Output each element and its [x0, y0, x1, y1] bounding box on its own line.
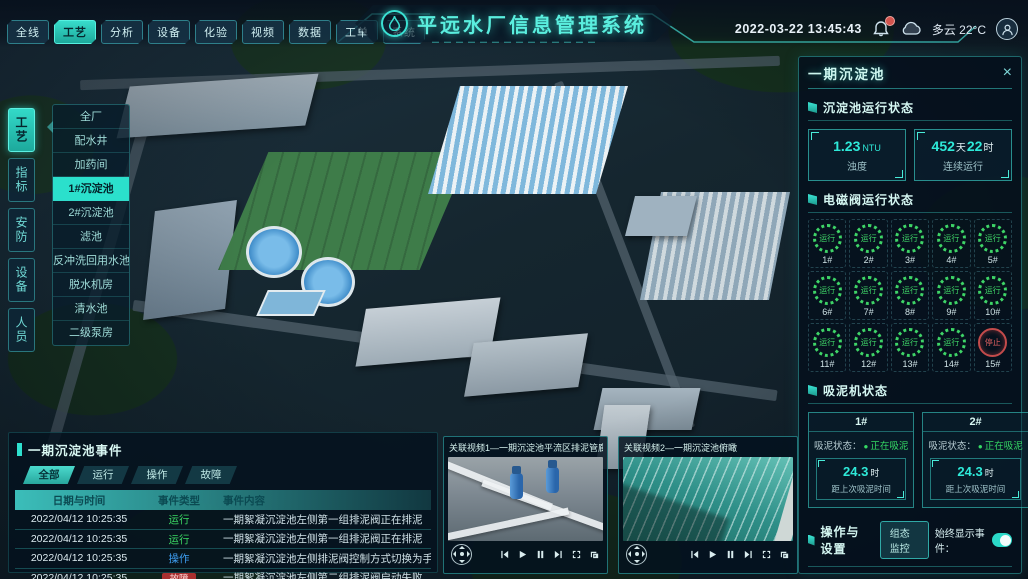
- valve-6[interactable]: 运行6#: [808, 271, 846, 320]
- scene-element: [554, 81, 695, 430]
- scraper-status-line: 吸泥状态：●正在吸泥: [923, 432, 1027, 456]
- valve-9[interactable]: 运行9#: [932, 271, 970, 320]
- weather-text: 多云 22°C: [932, 21, 986, 38]
- playback-buttons: [499, 549, 600, 560]
- uptime-hours-unit: 时: [983, 143, 993, 154]
- fullscreen-icon[interactable]: [761, 549, 772, 560]
- notification-bell-icon[interactable]: [872, 20, 890, 38]
- user-avatar[interactable]: [996, 18, 1018, 40]
- alarm-badge: [885, 16, 895, 26]
- scene-element: [510, 473, 523, 499]
- valve-2[interactable]: 运行2#: [849, 219, 887, 268]
- ptz-dpad-control[interactable]: [451, 544, 472, 565]
- section-title: 吸泥机状态: [823, 382, 888, 399]
- section-chip-icon: [17, 443, 22, 456]
- pond-status-cards: 1.23NTU 浊度 452天22时 连续运行: [808, 129, 1012, 181]
- pause-icon[interactable]: [535, 549, 546, 560]
- nav-tab-huayan[interactable]: 化验: [195, 20, 237, 44]
- scene-element: [428, 86, 628, 194]
- panel-header: 一期沉淀池 ×: [808, 63, 1012, 89]
- skip-forward-icon[interactable]: [553, 549, 564, 560]
- turbidity-label: 浊度: [847, 158, 867, 173]
- uptime-hours: 22: [967, 138, 983, 154]
- valve-13[interactable]: 运行13#: [891, 323, 929, 372]
- uptime-days-unit: 天: [956, 143, 966, 154]
- menu-item-dewatering-room[interactable]: 脱水机房: [53, 273, 129, 297]
- scene-element: [594, 388, 701, 430]
- valve-12[interactable]: 运行12#: [849, 323, 887, 372]
- uptime-days: 452: [932, 138, 955, 154]
- valve-7[interactable]: 运行7#: [849, 271, 887, 320]
- scene-element: [448, 508, 569, 541]
- video-feed-2[interactable]: [623, 457, 793, 541]
- events-title: 一期沉淀池事件: [28, 440, 123, 459]
- water-drop-logo-icon: [381, 10, 408, 37]
- scene-element: [117, 74, 319, 139]
- left-category-tabs: 工艺 指标 安防 设备 人员: [8, 108, 35, 352]
- scene-element: [218, 152, 470, 270]
- process-menu: 全厂 配水井 加药间 1#沉淀池 2#沉淀池 滤池 反冲洗回用水池 脱水机房 清…: [52, 104, 130, 346]
- nav-tab-quanxian[interactable]: 全线: [7, 20, 49, 44]
- nav-tab-gongyi[interactable]: 工艺: [54, 20, 96, 44]
- event-type-badge: 运行: [169, 534, 190, 546]
- valve-8[interactable]: 运行8#: [891, 271, 929, 320]
- scraper-timer-box: 24.3时 距上次吸泥时间: [930, 458, 1020, 500]
- scraper-id: 2#: [923, 413, 1027, 432]
- nav-tab-shebei[interactable]: 设备: [148, 20, 190, 44]
- pause-icon[interactable]: [725, 549, 736, 560]
- status-dot-icon: ●: [864, 442, 869, 451]
- events-panel: 一期沉淀池事件 全部 运行 操作 故障 日期与时间 事件类型 事件内容 2022…: [8, 432, 438, 573]
- valve-4[interactable]: 运行4#: [932, 219, 970, 268]
- events-filter-tabs: 全部 运行 操作 故障: [23, 466, 437, 484]
- scene-element: [143, 200, 237, 320]
- section-title: 操作与设置: [821, 523, 868, 557]
- events-table: 日期与时间 事件类型 事件内容 2022/04/12 10:25:35 运行 一…: [15, 490, 431, 579]
- status-dot-icon: ●: [978, 442, 983, 451]
- scraper-cards: 1# 吸泥状态：●正在吸泥 24.3时 距上次吸泥时间 2# 吸泥状态：●正在吸…: [808, 412, 1012, 508]
- ptz-dpad-control[interactable]: [626, 544, 647, 565]
- valve-3[interactable]: 运行3#: [891, 219, 929, 268]
- section-chip-icon: [808, 194, 817, 205]
- scene-element: [246, 226, 302, 278]
- video-controls: [448, 541, 603, 567]
- event-type-badge: 操作: [169, 553, 190, 565]
- skip-back-icon[interactable]: [499, 549, 510, 560]
- close-icon[interactable]: ×: [1003, 65, 1012, 81]
- events-header: 一期沉淀池事件: [9, 438, 437, 463]
- scraper-id: 1#: [809, 413, 913, 432]
- sidebar-tab-process[interactable]: 工艺: [8, 108, 35, 152]
- replay-icon[interactable]: [589, 549, 600, 560]
- menu-item-secondary-pump[interactable]: 二级泵房: [53, 321, 129, 345]
- valve-1[interactable]: 运行1#: [808, 219, 846, 268]
- scene-element: [355, 297, 500, 366]
- nav-tab-shuju[interactable]: 数据: [289, 20, 331, 44]
- fullscreen-icon[interactable]: [571, 549, 582, 560]
- scraper-card-1: 1# 吸泥状态：●正在吸泥 24.3时 距上次吸泥时间: [808, 412, 914, 508]
- sidebar-tab-metrics[interactable]: 指标: [8, 158, 35, 202]
- video-panel-1: 关联视频1—一期沉淀池平流区排泥管廊: [443, 436, 608, 574]
- scada-monitor-button[interactable]: 组态监控: [880, 521, 929, 559]
- events-tab-run[interactable]: 运行: [77, 466, 129, 484]
- scene-element: [464, 333, 588, 397]
- section-chip-icon: [808, 385, 817, 396]
- section-title: 沉淀池运行状态: [823, 99, 914, 116]
- events-tab-all[interactable]: 全部: [23, 466, 75, 484]
- weather-cloud-icon: [900, 21, 922, 37]
- video-panel-2: 关联视频2—一期沉淀池俯瞰: [618, 436, 798, 574]
- replay-icon[interactable]: [779, 549, 790, 560]
- datetime-display: 2022-03-22 13:45:43: [735, 22, 862, 36]
- event-type-badge: 故障: [162, 573, 195, 579]
- app-title-plaque: 平远水厂信息管理系统: [355, 5, 673, 42]
- turbidity-value: 1.23: [833, 138, 860, 154]
- skip-back-icon[interactable]: [689, 549, 700, 560]
- scene-element: [301, 257, 355, 307]
- scene-element: [256, 290, 326, 316]
- events-tab-operation[interactable]: 操作: [131, 466, 183, 484]
- valve-11[interactable]: 运行11#: [808, 323, 846, 372]
- table-row[interactable]: 2022/04/12 10:25:35 故障 一期絮凝沉淀池左侧第二组排泥阀启动…: [15, 569, 431, 579]
- sedimentation-detail-panel: 一期沉淀池 × 沉淀池运行状态 1.23NTU 浊度 452天22时 连续运行 …: [798, 56, 1022, 574]
- nav-tab-fenxi[interactable]: 分析: [101, 20, 143, 44]
- menu-item-filter-pond[interactable]: 滤池: [53, 225, 129, 249]
- section-chip-icon: [808, 102, 817, 113]
- skip-forward-icon[interactable]: [743, 549, 754, 560]
- scene-element: [640, 192, 790, 300]
- show-events-label: 始终显示事件：: [935, 525, 986, 555]
- play-icon[interactable]: [707, 549, 718, 560]
- menu-item-dosing-room[interactable]: 加药间: [53, 153, 129, 177]
- uptime-card: 452天22时 连续运行: [914, 129, 1012, 181]
- table-row[interactable]: 2022/04/12 10:25:35 操作 一期絮凝沉淀池左侧排泥阀控制方式切…: [15, 549, 431, 569]
- nav-tab-shipin[interactable]: 视频: [242, 20, 284, 44]
- section-scrapers: 吸泥机状态: [808, 379, 1012, 404]
- scene-element: [546, 467, 559, 493]
- events-tab-fault[interactable]: 故障: [185, 466, 237, 484]
- show-events-toggle[interactable]: [992, 533, 1012, 547]
- sidebar-tab-personnel[interactable]: 人员: [8, 308, 35, 352]
- video-feed-1[interactable]: [448, 457, 603, 541]
- panel-title: 一期沉淀池: [808, 63, 886, 83]
- section-title: 电磁阀运行状态: [823, 191, 914, 208]
- valve-grid: 运行1# 运行2# 运行3# 运行4# 运行5# 运行6# 运行7# 运行8# …: [808, 219, 1012, 372]
- menu-item-clear-water-pond[interactable]: 清水池: [53, 297, 129, 321]
- section-ops: 操作与设置 组态监控 始终显示事件：: [808, 515, 1012, 567]
- uptime-label: 连续运行: [943, 158, 983, 173]
- events-table-header: 日期与时间 事件类型 事件内容: [15, 490, 431, 510]
- menu-item-backwash-pond[interactable]: 反冲洗回用水池: [53, 249, 129, 273]
- valve-15[interactable]: 停止15#: [974, 323, 1012, 372]
- scene-element: [132, 300, 777, 401]
- header-right-group: 2022-03-22 13:45:43 多云 22°C: [735, 18, 1018, 40]
- turbidity-card: 1.23NTU 浊度: [808, 129, 906, 181]
- menu-item-sedimentation-2[interactable]: 2#沉淀池: [53, 201, 129, 225]
- dashboard-root: 全线 工艺 分析 设备 化验 视频 数据 工单 系统 平远水厂信息管理系统 20…: [0, 0, 1028, 579]
- video-controls: [623, 541, 793, 567]
- playback-buttons: [689, 549, 790, 560]
- scene-element: [80, 56, 780, 90]
- turbidity-unit: NTU: [862, 143, 881, 153]
- scraper-card-2: 2# 吸泥状态：●正在吸泥 24.3时 距上次吸泥时间: [922, 412, 1028, 508]
- scraper-timer-box: 24.3时 距上次吸泥时间: [816, 458, 906, 500]
- menu-item-distribution-well[interactable]: 配水井: [53, 129, 129, 153]
- valve-14[interactable]: 运行14#: [932, 323, 970, 372]
- table-row[interactable]: 2022/04/12 10:25:35 运行 一期絮凝沉淀池左侧第一组排泥阀正在…: [15, 510, 431, 530]
- section-pond-status: 沉淀池运行状态: [808, 96, 1012, 121]
- top-header: 全线 工艺 分析 设备 化验 视频 数据 工单 系统 平远水厂信息管理系统 20…: [0, 0, 1028, 48]
- menu-item-sedimentation-1[interactable]: 1#沉淀池: [53, 177, 129, 201]
- play-icon[interactable]: [517, 549, 528, 560]
- sidebar-tab-equipment[interactable]: 设备: [8, 258, 35, 302]
- section-valves: 电磁阀运行状态: [808, 188, 1012, 213]
- table-row[interactable]: 2022/04/12 10:25:35 运行 一期絮凝沉淀池左侧第一组排泥阀正在…: [15, 530, 431, 550]
- menu-item-whole-plant[interactable]: 全厂: [53, 105, 129, 129]
- valve-10[interactable]: 运行10#: [974, 271, 1012, 320]
- scene-element: [625, 196, 697, 236]
- page-title: 平远水厂信息管理系统: [417, 9, 647, 38]
- scraper-status-line: 吸泥状态：●正在吸泥: [809, 432, 913, 456]
- video-title: 关联视频1—一期沉淀池平流区排泥管廊: [448, 440, 603, 457]
- section-chip-icon: [808, 535, 815, 546]
- valve-5[interactable]: 运行5#: [974, 219, 1012, 268]
- video-title: 关联视频2—一期沉淀池俯瞰: [623, 440, 793, 457]
- sidebar-tab-security[interactable]: 安防: [8, 208, 35, 252]
- event-type-badge: 运行: [169, 514, 190, 526]
